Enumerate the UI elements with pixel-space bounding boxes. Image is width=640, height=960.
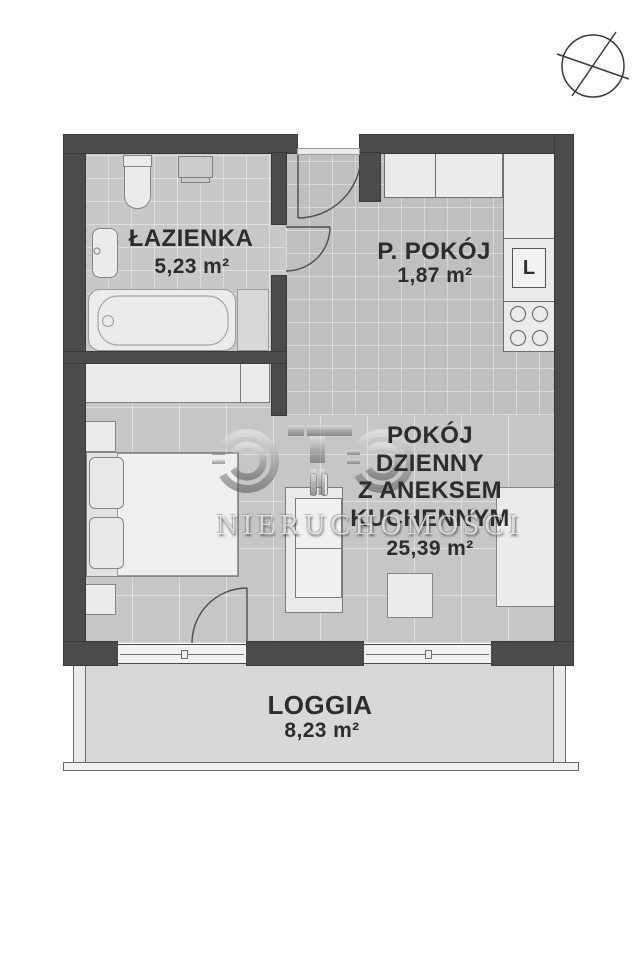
loggia-wall-left xyxy=(73,664,86,764)
loggia-name: LOGGIA xyxy=(240,690,400,721)
pillow-top xyxy=(89,457,124,509)
counter-divider xyxy=(435,154,436,197)
window-frame-tick xyxy=(181,650,188,659)
fridge: L xyxy=(512,248,546,288)
bathroom-area: 5,23 m² xyxy=(112,255,272,279)
floorplan-page: L xyxy=(0,0,640,960)
wall-bathroom-south xyxy=(64,352,286,363)
hall-name: P. POKÓJ xyxy=(354,238,514,266)
balcony-door-window xyxy=(117,644,247,664)
washing-machine-front xyxy=(181,177,210,183)
bathroom-name: ŁAZIENKA xyxy=(111,225,271,253)
bathroom-shelf xyxy=(237,289,269,351)
living-name-line: Z ANEKSEM xyxy=(330,477,530,505)
pillow-bottom xyxy=(89,517,124,569)
wall-top-left xyxy=(64,135,297,153)
watermark-brand: NIERUCHOMOŚCI xyxy=(190,509,550,542)
wall-entry-stub xyxy=(360,153,380,201)
wall-bathroom-upper xyxy=(272,153,286,224)
counter-divider xyxy=(504,301,554,302)
wall-bottom-middle xyxy=(247,642,363,665)
kitchen-counter-top xyxy=(384,153,503,198)
living-name-line: DZIENNY xyxy=(330,450,530,478)
wardrobe xyxy=(85,362,270,403)
chair-back-left xyxy=(310,473,317,496)
loggia-area: 8,23 m² xyxy=(242,719,402,743)
loggia-railing xyxy=(63,762,579,771)
pouf xyxy=(387,573,433,618)
hall-area: 1,87 m² xyxy=(355,264,515,288)
loggia-window xyxy=(363,644,492,664)
wall-left xyxy=(64,135,85,665)
wall-bottom-left xyxy=(64,642,117,665)
living-name-line: POKÓJ xyxy=(330,422,530,450)
compass-rose-icon xyxy=(557,32,629,97)
wall-right xyxy=(555,135,573,665)
fridge-label: L xyxy=(523,257,535,280)
washing-machine xyxy=(178,156,213,178)
nightstand-bottom xyxy=(85,584,116,615)
nightstand-top xyxy=(85,421,116,452)
window-frame-tick xyxy=(425,650,432,659)
wall-top-right xyxy=(360,135,573,153)
entry-threshold xyxy=(297,148,360,155)
bathtub xyxy=(88,289,236,351)
wall-bottom-right xyxy=(492,642,573,665)
wall-bathroom-lower xyxy=(272,276,286,415)
chair-back-right xyxy=(321,473,328,496)
loggia-wall-right xyxy=(553,664,566,764)
toilet-bowl xyxy=(124,166,151,209)
wardrobe-divider xyxy=(240,363,241,402)
